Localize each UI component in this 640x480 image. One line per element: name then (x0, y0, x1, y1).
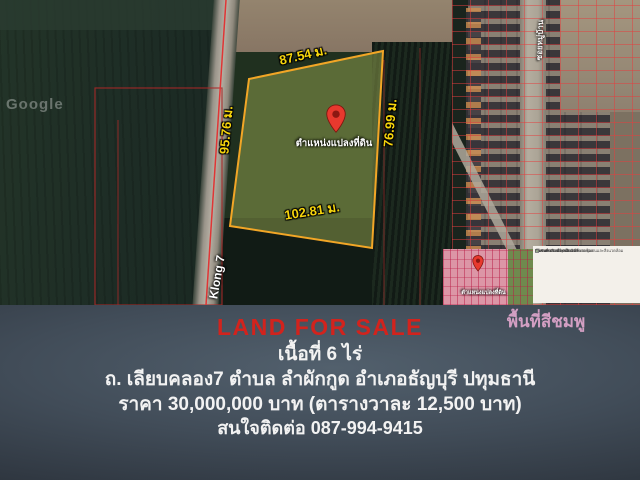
soi-label: ซอยหมู่บ้าน (533, 20, 547, 61)
measurement-right: 76.99 ม. (377, 98, 402, 148)
legend-label: ที่โล่งเพื่อรักษาคุณภาพสิ่งแวดล้อม (535, 248, 593, 253)
inset-zoning-map: ตำแหน่งแปลงที่ดิน (443, 249, 533, 305)
zoning-legend: ชุมชนพาณิชยกรรม อุตสาหกรรมและบริการ อุตส… (533, 246, 640, 303)
flyer-title: LAND FOR SALE (0, 314, 640, 341)
red-parcel-rect (95, 88, 222, 305)
google-watermark: Google (6, 96, 64, 113)
inset-pin-icon (472, 255, 484, 272)
inset-pin-label: ตำแหน่งแปลงที่ดิน (461, 289, 505, 297)
pin-label: ตำแหน่งแปลงที่ดิน (296, 136, 373, 151)
land-sale-flyer: Google 87.54 ม. 76.99 ม. 102.81 ม. 95.76… (0, 0, 640, 480)
contact-line: สนใจติดต่อ 087-994-9415 (0, 413, 640, 442)
listing-panel: พื้นที่สีชมพู LAND FOR SALE เนื้อที่ 6 ไ… (0, 305, 640, 480)
satellite-map: Google 87.54 ม. 76.99 ม. 102.81 ม. 95.76… (0, 0, 640, 305)
location-pin-icon (325, 104, 347, 134)
measurement-left: 95.76 ม. (213, 105, 238, 155)
